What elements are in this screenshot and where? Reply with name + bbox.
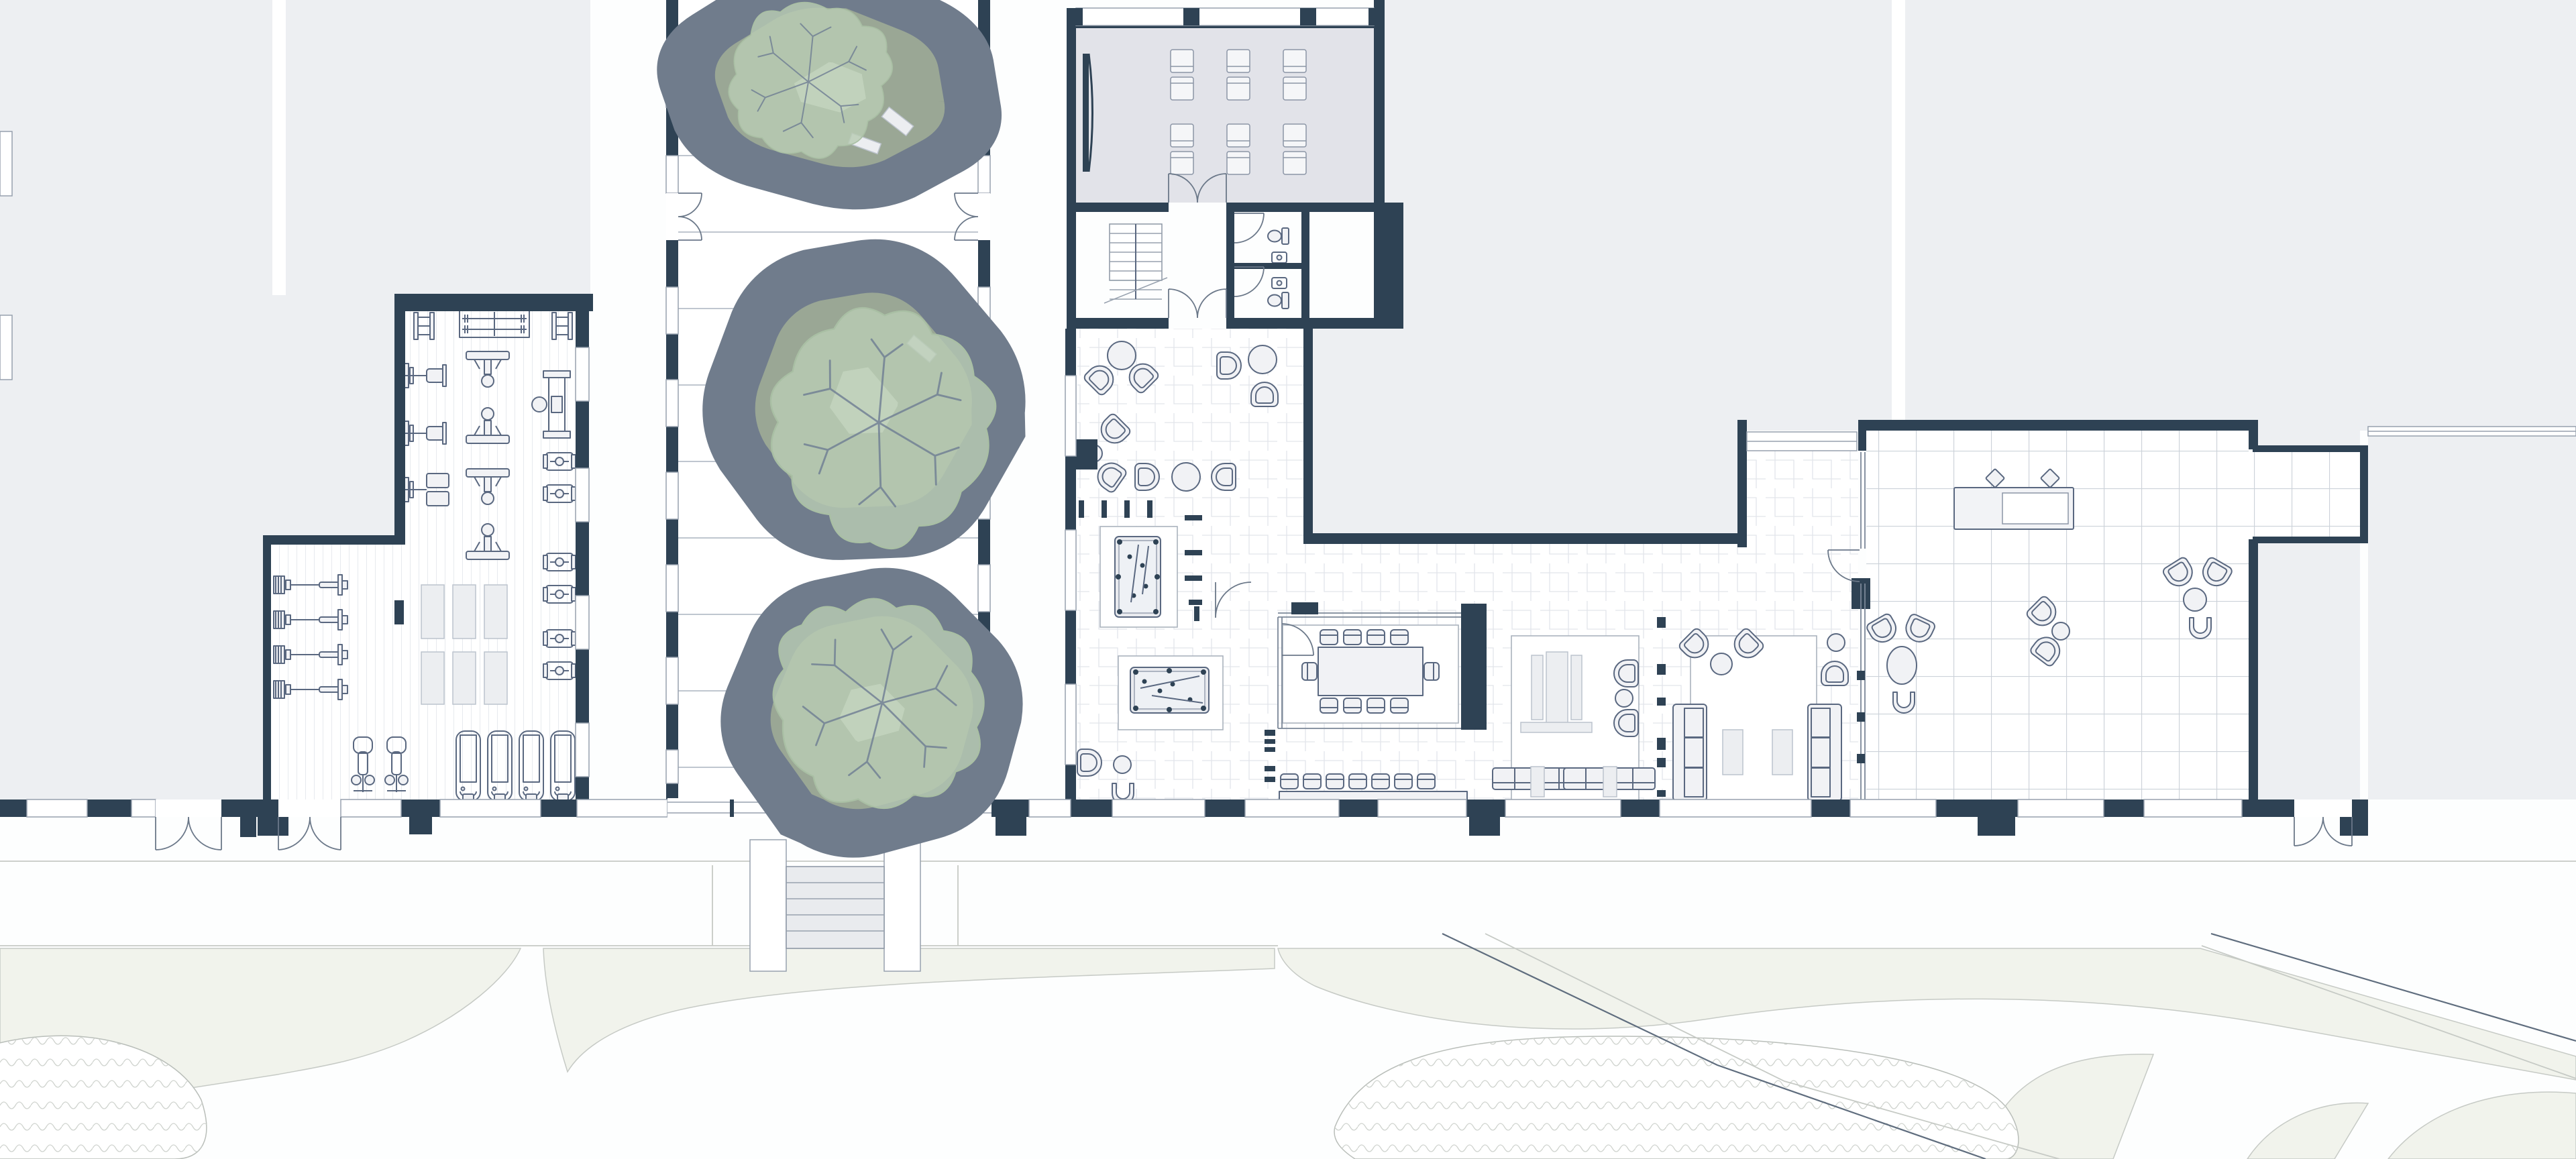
bar-inner-counter <box>2002 493 2068 524</box>
media-console <box>1546 652 1568 723</box>
planted-mound <box>1334 1036 2019 1159</box>
building-seam <box>272 0 286 295</box>
shelf-unit <box>1532 655 1543 720</box>
screening-room-floor <box>1076 25 1374 203</box>
sink <box>1272 252 1287 263</box>
shelf-unit <box>1571 655 1582 720</box>
facade-window <box>0 315 12 380</box>
lawn <box>2247 1103 2368 1159</box>
armchair <box>1614 660 1638 687</box>
side-table <box>2052 622 2070 640</box>
armchair <box>1212 463 1236 490</box>
south-facade-double-door <box>156 817 221 850</box>
billiard-table <box>1115 537 1161 617</box>
floor-mat <box>484 652 507 704</box>
squat-rack <box>414 313 434 339</box>
settee <box>1493 768 1537 789</box>
floor-plan <box>0 0 2576 1159</box>
glass-wall <box>1861 452 1865 799</box>
round-table <box>1711 653 1732 675</box>
dining-table <box>1318 647 1423 696</box>
building-seam <box>1892 0 1905 431</box>
ottoman <box>1723 730 1743 775</box>
steps <box>786 867 884 948</box>
living-room-rug <box>1690 636 1817 804</box>
console-base <box>1521 722 1592 732</box>
armchair <box>1614 710 1638 736</box>
round-table <box>1248 345 1277 374</box>
squat-rack <box>552 313 572 339</box>
side-table <box>1114 756 1131 773</box>
round-table <box>1108 341 1136 370</box>
projection-screen <box>1083 54 1089 172</box>
settee <box>1611 768 1655 789</box>
toilet <box>1268 292 1289 309</box>
restroom-doors <box>1234 213 1264 296</box>
floor-mat <box>421 652 444 704</box>
settee <box>1564 768 1608 789</box>
planter-box <box>750 840 786 971</box>
round-table <box>2184 588 2206 611</box>
lawn <box>2388 1092 2576 1159</box>
toilet <box>1268 228 1289 244</box>
facade-window <box>0 131 12 196</box>
armchair <box>1217 352 1241 379</box>
floor-mat <box>421 585 444 639</box>
floor-mat <box>484 585 507 639</box>
floor-mat <box>453 585 476 639</box>
oval-table <box>1887 647 1917 684</box>
armchair <box>1135 463 1159 490</box>
floor-mat <box>453 652 476 704</box>
armchair <box>1251 382 1278 406</box>
sofa <box>1673 704 1707 801</box>
landscape <box>0 861 2576 1159</box>
armchair <box>1077 749 1102 776</box>
billiard-table <box>1130 667 1209 713</box>
planter-box <box>884 840 920 971</box>
vestibule-double-door <box>1169 289 1226 318</box>
side-table <box>1827 634 1845 651</box>
ottoman <box>1772 730 1792 775</box>
armchair <box>1821 661 1848 685</box>
floor-plan-drawing <box>0 0 2576 1159</box>
side-table <box>1615 689 1633 707</box>
courtyard-planting <box>714 0 1038 832</box>
round-table <box>1172 463 1200 491</box>
sink <box>1272 278 1287 288</box>
sofa <box>1808 704 1841 801</box>
